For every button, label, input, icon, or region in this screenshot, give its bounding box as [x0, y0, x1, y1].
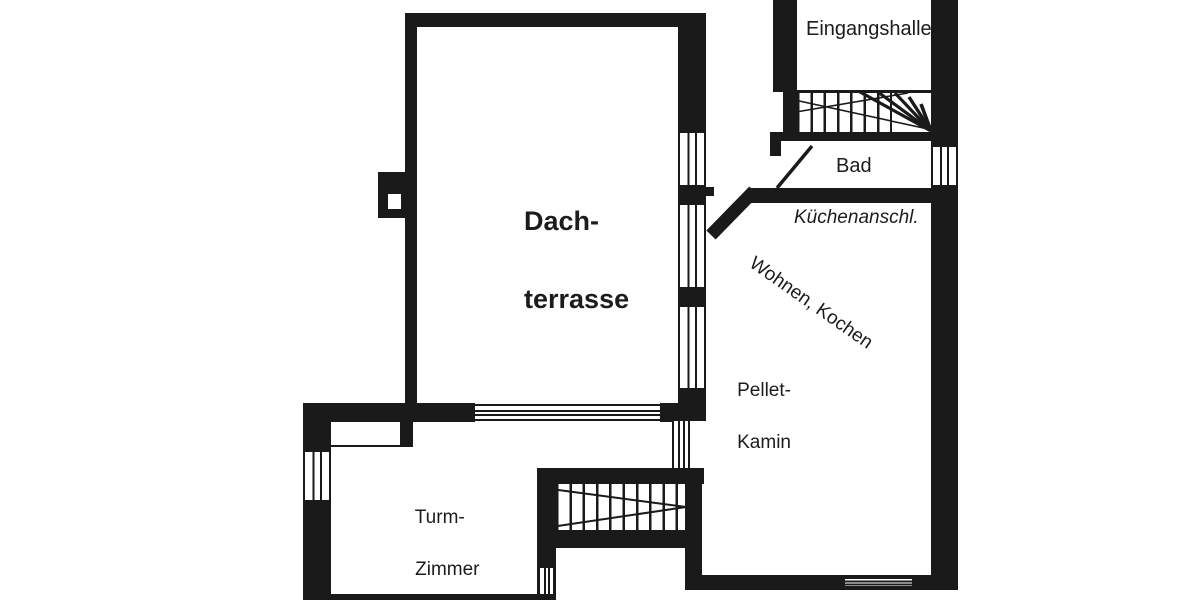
bad-door-leaf [777, 146, 812, 188]
wall-column-block-a [678, 185, 706, 205]
window-east [931, 147, 958, 185]
wall-terrace-left [405, 13, 417, 403]
wall-turm-niche-stub [400, 422, 413, 447]
label-pellet-kamin: Pellet- Kamin [716, 352, 791, 482]
label-eingangshalle: Eingangshalle [806, 16, 932, 42]
label-pellet-line2: Kamin [737, 432, 791, 453]
window-column-4 [672, 421, 690, 468]
floor-plan: Eingangshalle Bad Küchenanschl. Wohnen, … [0, 0, 1200, 600]
window-terrace-bottom [475, 404, 660, 421]
wall-stair-bottom [537, 530, 702, 548]
label-dach-line2: terrasse [524, 284, 629, 314]
window-column-1 [678, 133, 706, 185]
stairs-lower-treads [556, 484, 686, 530]
label-bad: Bad [836, 153, 872, 179]
window-stair-left [538, 568, 555, 594]
window-turm-left [303, 452, 331, 500]
wall-east [931, 0, 958, 590]
label-wohnen-kochen: Wohnen, Kochen [744, 252, 877, 356]
wall-column-block-b [678, 287, 706, 307]
label-turmzimmer: Turm- Zimmer [394, 479, 480, 600]
label-kuechenanschluss: Küchenanschl. [794, 206, 919, 231]
wall-terrace-bottom-right [660, 403, 680, 422]
wall-diagonal-kitchen [711, 191, 754, 235]
winder-fan-line [909, 97, 931, 131]
label-pellet-line1: Pellet- [737, 380, 791, 401]
window-south [845, 577, 912, 588]
label-dachterrasse: Dach- terrasse [494, 163, 629, 358]
wall-stair-right [685, 468, 702, 590]
wall-south [685, 575, 958, 590]
wall-eingang-left [773, 0, 797, 92]
wall-turm-left [303, 403, 331, 600]
wall-stair-top [537, 468, 704, 484]
label-turm-line1: Turm- [415, 507, 465, 528]
winder-fan-line [921, 104, 931, 131]
wall-column-upper [678, 13, 706, 133]
window-column-2 [678, 205, 706, 287]
stairs-upper-treads [797, 92, 892, 132]
label-dach-line1: Dach- [524, 206, 599, 236]
wall-turm-niche-edge [331, 445, 400, 447]
wall-column-stub [706, 187, 714, 196]
wall-bad-bottom [751, 188, 958, 203]
wall-bad-door-stub [770, 132, 781, 156]
wall-stairwell-bottom [770, 132, 931, 141]
winder-fan-line [895, 93, 931, 131]
label-turm-line2: Zimmer [415, 559, 479, 580]
wall-terrace-top [405, 13, 703, 27]
pellet-stove-block [678, 388, 706, 421]
window-column-3 [678, 307, 706, 388]
chimney-flue-opening [388, 194, 401, 209]
